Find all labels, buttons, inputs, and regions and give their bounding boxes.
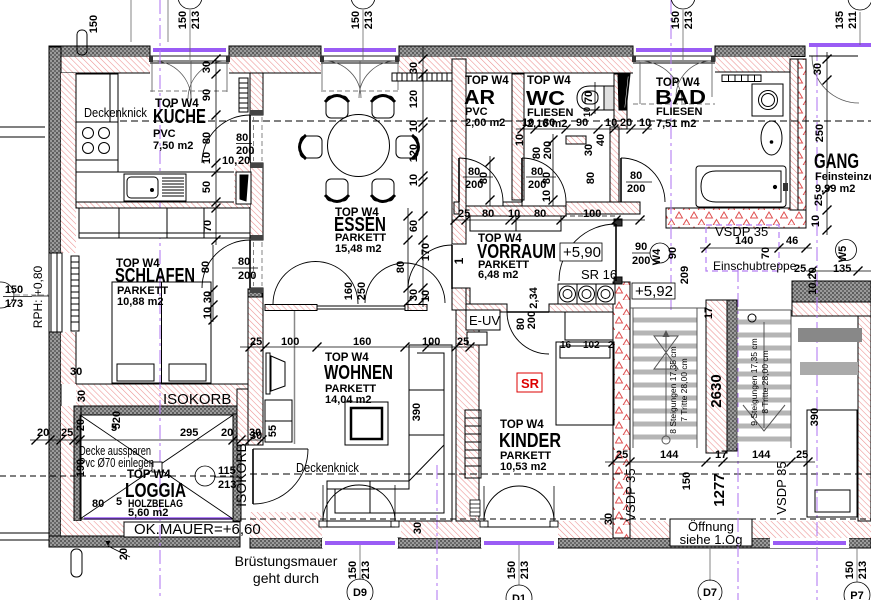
svg-text:KÜCHE: KÜCHE bbox=[153, 105, 206, 128]
svg-text:5: 5 bbox=[116, 496, 122, 508]
svg-text:GANG: GANG bbox=[814, 150, 859, 173]
svg-text:PVC: PVC bbox=[153, 128, 176, 140]
svg-text:390: 390 bbox=[411, 403, 423, 421]
svg-text:20: 20 bbox=[118, 548, 130, 560]
svg-text:2: 2 bbox=[608, 340, 614, 351]
svg-text:90: 90 bbox=[201, 89, 213, 101]
svg-text:80: 80 bbox=[630, 170, 642, 182]
svg-text:80: 80 bbox=[200, 261, 212, 273]
svg-text:2630: 2630 bbox=[708, 374, 725, 407]
svg-text:FLIESEN: FLIESEN bbox=[656, 106, 703, 118]
svg-text:209: 209 bbox=[679, 266, 691, 284]
svg-text:2,34: 2,34 bbox=[528, 286, 540, 308]
svg-text:10: 10 bbox=[541, 190, 553, 202]
svg-text:10,53 m2: 10,53 m2 bbox=[500, 461, 546, 473]
svg-text:50: 50 bbox=[201, 181, 213, 193]
svg-text:25: 25 bbox=[813, 194, 825, 206]
svg-text:1: 1 bbox=[452, 257, 466, 264]
svg-text:D1: D1 bbox=[512, 593, 526, 600]
svg-text:10: 10 bbox=[514, 134, 526, 146]
svg-text:30: 30 bbox=[408, 289, 420, 301]
svg-text:8 Steigungen 17,35 cm: 8 Steigungen 17,35 cm bbox=[668, 346, 678, 433]
svg-text:55: 55 bbox=[267, 425, 279, 437]
svg-text:30: 30 bbox=[812, 63, 824, 75]
svg-text:30: 30 bbox=[202, 291, 214, 303]
svg-text:150: 150 bbox=[670, 11, 682, 29]
svg-text:SR: SR bbox=[521, 376, 540, 391]
svg-text:144: 144 bbox=[660, 449, 679, 461]
svg-text:10: 10 bbox=[582, 107, 592, 117]
svg-text:150: 150 bbox=[681, 472, 693, 490]
svg-text:173: 173 bbox=[5, 298, 23, 310]
svg-text:30: 30 bbox=[408, 62, 420, 74]
svg-text:P7: P7 bbox=[850, 590, 863, 600]
svg-text:Deckenknick: Deckenknick bbox=[84, 106, 148, 120]
svg-text:80: 80 bbox=[395, 261, 407, 273]
svg-text:250: 250 bbox=[814, 124, 826, 142]
svg-text:150: 150 bbox=[88, 15, 100, 33]
svg-text:9,99 m2: 9,99 m2 bbox=[815, 183, 855, 195]
svg-text:7 Tritte 28,00 cm: 7 Tritte 28,00 cm bbox=[679, 358, 689, 421]
svg-text:80: 80 bbox=[543, 117, 555, 129]
svg-text:10: 10 bbox=[408, 174, 420, 186]
svg-text:200: 200 bbox=[526, 311, 538, 329]
svg-text:30: 30 bbox=[76, 390, 88, 402]
svg-text:25: 25 bbox=[61, 427, 73, 439]
svg-text:80: 80 bbox=[585, 172, 597, 184]
svg-text:30: 30 bbox=[201, 61, 213, 73]
svg-text:150: 150 bbox=[347, 561, 359, 579]
svg-text:1277: 1277 bbox=[711, 473, 728, 506]
svg-text:8 Tritte 28,00 cm: 8 Tritte 28,00 cm bbox=[760, 350, 770, 413]
svg-text:OK.MAUER=+6,60: OK.MAUER=+6,60 bbox=[134, 521, 261, 538]
svg-text:W5: W5 bbox=[837, 246, 849, 263]
svg-text:30: 30 bbox=[250, 430, 262, 442]
svg-text:213: 213 bbox=[218, 479, 236, 491]
svg-text:20: 20 bbox=[238, 155, 250, 167]
svg-text:213: 213 bbox=[190, 11, 202, 29]
svg-text:150: 150 bbox=[177, 11, 189, 29]
svg-text:10: 10 bbox=[202, 307, 214, 319]
svg-text:135: 135 bbox=[834, 11, 846, 29]
svg-text:7,50 m2: 7,50 m2 bbox=[153, 140, 193, 152]
svg-text:WOHNEN: WOHNEN bbox=[324, 362, 393, 384]
svg-text:D9: D9 bbox=[353, 587, 367, 599]
svg-text:10: 10 bbox=[408, 120, 420, 132]
svg-text:102: 102 bbox=[583, 340, 600, 351]
svg-text:160: 160 bbox=[353, 336, 371, 348]
svg-text:+5,92: +5,92 bbox=[635, 283, 673, 300]
svg-text:170: 170 bbox=[420, 243, 432, 261]
svg-text:10: 10 bbox=[639, 117, 651, 129]
svg-text:295: 295 bbox=[180, 427, 198, 439]
svg-text:+5,90: +5,90 bbox=[563, 244, 601, 261]
svg-text:80: 80 bbox=[534, 208, 546, 220]
svg-text:SR 16: SR 16 bbox=[581, 267, 617, 282]
svg-text:200: 200 bbox=[238, 270, 256, 282]
svg-text:100: 100 bbox=[583, 208, 601, 220]
svg-text:VSDP 35: VSDP 35 bbox=[623, 468, 638, 521]
svg-text:520: 520 bbox=[111, 411, 123, 429]
svg-text:TOP W4: TOP W4 bbox=[527, 75, 571, 87]
svg-text:10: 10 bbox=[522, 117, 534, 129]
svg-text:7,51 m2: 7,51 m2 bbox=[656, 118, 696, 130]
svg-text:190: 190 bbox=[75, 459, 87, 477]
svg-text:KINDER: KINDER bbox=[499, 430, 561, 452]
svg-text:W4: W4 bbox=[651, 248, 663, 265]
svg-text:10: 10 bbox=[508, 208, 520, 220]
svg-text:10,88 m2: 10,88 m2 bbox=[117, 296, 163, 308]
svg-text:20: 20 bbox=[221, 427, 233, 439]
svg-text:70: 70 bbox=[202, 220, 214, 232]
svg-text:siehe 1.Og: siehe 1.Og bbox=[680, 532, 743, 547]
svg-text:80: 80 bbox=[541, 172, 553, 184]
svg-text:250: 250 bbox=[356, 282, 368, 300]
svg-text:10: 10 bbox=[605, 117, 617, 129]
svg-text:20: 20 bbox=[620, 117, 632, 129]
svg-text:90: 90 bbox=[667, 247, 679, 259]
svg-text:6,48 m2: 6,48 m2 bbox=[478, 269, 518, 281]
svg-text:D7: D7 bbox=[703, 587, 717, 599]
svg-text:211: 211 bbox=[847, 11, 859, 29]
svg-text:80: 80 bbox=[92, 498, 104, 510]
svg-text:80: 80 bbox=[238, 256, 250, 268]
svg-text:RPH: +0,80: RPH: +0,80 bbox=[31, 265, 45, 328]
svg-text:20: 20 bbox=[75, 419, 87, 431]
svg-text:115: 115 bbox=[218, 465, 236, 477]
svg-text:100: 100 bbox=[281, 336, 299, 348]
svg-text:Feinsteinzeug: Feinsteinzeug bbox=[815, 171, 871, 183]
svg-text:10: 10 bbox=[810, 215, 822, 227]
svg-text:90: 90 bbox=[635, 241, 647, 253]
svg-text:40: 40 bbox=[595, 134, 607, 146]
svg-text:10,: 10, bbox=[222, 155, 237, 167]
svg-text:10: 10 bbox=[420, 290, 432, 302]
svg-text:213: 213 bbox=[857, 561, 869, 579]
svg-text:17: 17 bbox=[703, 307, 715, 319]
svg-text:5,60 m2: 5,60 m2 bbox=[128, 507, 168, 519]
svg-text:Deckenknick: Deckenknick bbox=[296, 461, 360, 475]
svg-text:390: 390 bbox=[809, 408, 821, 426]
svg-text:213: 213 bbox=[519, 561, 531, 579]
svg-text:200: 200 bbox=[627, 183, 645, 195]
svg-text:140: 140 bbox=[735, 235, 753, 247]
svg-text:25: 25 bbox=[796, 449, 808, 461]
svg-text:200: 200 bbox=[542, 141, 554, 159]
svg-text:25: 25 bbox=[794, 263, 806, 275]
svg-text:80: 80 bbox=[201, 132, 213, 144]
svg-text:20: 20 bbox=[37, 427, 49, 439]
svg-text:2,00 m2: 2,00 m2 bbox=[465, 117, 505, 129]
svg-text:25: 25 bbox=[457, 336, 469, 348]
svg-text:200: 200 bbox=[632, 255, 650, 267]
svg-text:150: 150 bbox=[5, 284, 23, 296]
svg-text:SCHLAFEN: SCHLAFEN bbox=[115, 265, 195, 287]
svg-text:46: 46 bbox=[786, 235, 798, 247]
svg-text:120: 120 bbox=[408, 144, 420, 162]
svg-text:16: 16 bbox=[560, 340, 572, 351]
svg-text:25: 25 bbox=[250, 336, 262, 348]
svg-text:25: 25 bbox=[458, 208, 470, 220]
svg-text:TOP W4: TOP W4 bbox=[465, 75, 509, 87]
svg-text:25: 25 bbox=[616, 449, 628, 461]
svg-text:17: 17 bbox=[715, 449, 727, 461]
svg-text:150: 150 bbox=[506, 561, 518, 579]
svg-text:213: 213 bbox=[363, 11, 375, 29]
svg-text:30: 30 bbox=[70, 366, 82, 378]
svg-text:150: 150 bbox=[350, 11, 362, 29]
svg-text:120: 120 bbox=[408, 90, 420, 108]
svg-text:E-UV: E-UV bbox=[469, 313, 500, 328]
svg-text:213: 213 bbox=[360, 561, 372, 579]
svg-text:Pvc Ø70 einlegen: Pvc Ø70 einlegen bbox=[79, 456, 154, 470]
svg-text:70: 70 bbox=[760, 247, 772, 259]
svg-text:60: 60 bbox=[408, 220, 420, 232]
svg-text:30: 30 bbox=[583, 144, 595, 156]
svg-text:100: 100 bbox=[422, 336, 440, 348]
svg-text:15,48 m2: 15,48 m2 bbox=[335, 243, 381, 255]
svg-text:90: 90 bbox=[576, 117, 588, 129]
svg-text:10: 10 bbox=[201, 152, 213, 164]
svg-text:9 Steigungen 17,35 cm: 9 Steigungen 17,35 cm bbox=[749, 338, 759, 425]
svg-text:80: 80 bbox=[236, 132, 248, 144]
svg-text:10,20: 10,20 bbox=[807, 267, 819, 295]
svg-text:213: 213 bbox=[683, 11, 695, 29]
svg-text:geht durch: geht durch bbox=[253, 570, 319, 586]
svg-text:80: 80 bbox=[482, 208, 494, 220]
svg-text:30: 30 bbox=[412, 522, 424, 534]
svg-text:150: 150 bbox=[844, 561, 856, 579]
svg-text:Brüstungsmauer: Brüstungsmauer bbox=[235, 553, 338, 569]
svg-text:Einschubtreppe: Einschubtreppe bbox=[713, 259, 797, 273]
svg-text:14,04 m2: 14,04 m2 bbox=[325, 394, 371, 406]
svg-text:30: 30 bbox=[603, 513, 615, 525]
svg-text:VSDP 35: VSDP 35 bbox=[774, 461, 789, 514]
svg-text:ISOKORB: ISOKORB bbox=[163, 391, 231, 408]
svg-text:80: 80 bbox=[478, 172, 490, 184]
svg-text:70: 70 bbox=[583, 91, 595, 103]
svg-text:135: 135 bbox=[833, 263, 851, 275]
svg-text:160: 160 bbox=[343, 282, 355, 300]
svg-text:144: 144 bbox=[752, 449, 771, 461]
